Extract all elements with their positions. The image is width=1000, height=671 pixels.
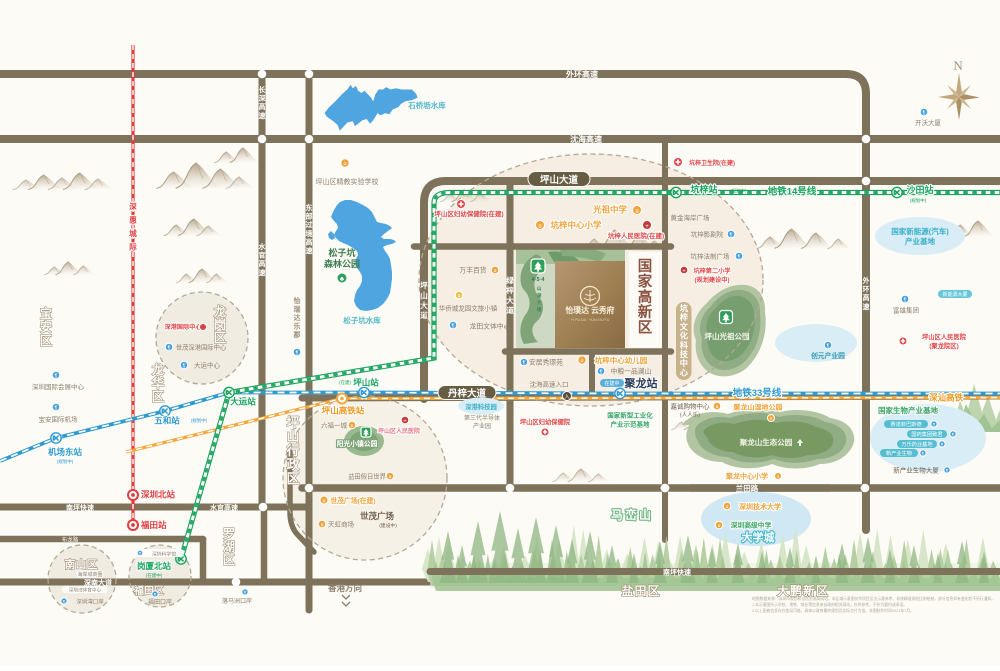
svg-text:益田假日世界: 益田假日世界 — [348, 472, 386, 481]
svg-text:松子坑: 松子坑 — [328, 247, 355, 258]
svg-text:瑞: 瑞 — [294, 305, 301, 314]
svg-text:龙田文体中心: 龙田文体中心 — [470, 322, 511, 331]
svg-text:水官高速: 水官高速 — [210, 503, 238, 512]
svg-text:郡: 郡 — [293, 330, 301, 339]
svg-text:(规划中): (规划中) — [730, 188, 747, 195]
svg-text:沈海高速: 沈海高速 — [570, 134, 602, 144]
svg-text:在建中: 在建中 — [604, 380, 619, 387]
svg-text:赛诺菲巴斯德: 赛诺菲巴斯德 — [890, 420, 921, 428]
svg-text:六福一城: 六福一城 — [321, 421, 348, 430]
svg-text:安: 安 — [40, 320, 53, 335]
svg-text:(规划中): (规划中) — [191, 417, 208, 424]
svg-text:盐田区: 盐田区 — [621, 583, 660, 598]
svg-text:N: N — [953, 58, 963, 73]
svg-text:国家新型工业化: 国家新型工业化 — [607, 411, 653, 420]
svg-text:(人人乐): (人人乐) — [680, 412, 700, 419]
svg-text:文: 文 — [680, 321, 689, 331]
svg-text:高: 高 — [638, 288, 653, 306]
svg-text:绿: 绿 — [506, 275, 514, 285]
svg-text:坑梓第二小学: 坑梓第二小学 — [693, 267, 730, 275]
svg-text:福田区: 福田区 — [133, 584, 164, 597]
svg-text:部: 部 — [306, 212, 313, 221]
svg-text:南坪快速: 南坪快速 — [663, 568, 691, 577]
svg-text:区: 区 — [152, 390, 165, 404]
svg-text:¶: ¶ — [55, 373, 58, 379]
svg-text:惠: 惠 — [129, 215, 137, 225]
svg-text:岗厦北站: 岗厦北站 — [137, 561, 172, 571]
svg-text:龙: 龙 — [151, 362, 165, 377]
svg-text:深圳高级中学: 深圳高级中学 — [731, 521, 772, 530]
svg-text:境: 境 — [537, 306, 542, 313]
svg-text:湖: 湖 — [223, 539, 235, 554]
svg-text:地铁14号线: 地铁14号线 — [768, 186, 817, 198]
svg-text:坑梓中心小学: 坑梓中心小学 — [550, 220, 602, 230]
svg-text:大学城: 大学城 — [742, 530, 775, 544]
svg-text:2.以上配套信息存在变动可能，具体以政府最终规划及实际交付为: 2.以上配套信息存在变动可能，具体以政府最终规划及实际交付为准。本图制作时间20… — [752, 608, 914, 613]
svg-text:创元产业园: 创元产业园 — [810, 351, 845, 360]
svg-text:城: 城 — [129, 228, 137, 238]
svg-text:¤: ¤ — [458, 293, 461, 299]
svg-text:高: 高 — [259, 259, 266, 268]
svg-text:光祖中学: 光祖中学 — [592, 205, 628, 215]
svg-text:政: 政 — [286, 457, 300, 472]
svg-text:¤: ¤ — [343, 162, 346, 168]
svg-text:坑梓人民医院(在建): 坑梓人民医院(在建) — [608, 231, 664, 240]
svg-text:湖: 湖 — [537, 292, 542, 299]
svg-text:聚龙山生态公园: 聚龙山生态公园 — [739, 437, 793, 447]
svg-text:深圳湾体育中心: 深圳湾体育中心 — [69, 587, 102, 594]
svg-text:国家新能源(汽车): 国家新能源(汽车) — [891, 226, 949, 236]
svg-text:(规划中): (规划中) — [57, 458, 74, 465]
svg-text:¤: ¤ — [321, 522, 324, 528]
svg-text:区: 区 — [286, 471, 299, 486]
svg-text:+: + — [645, 224, 649, 230]
svg-text:罗: 罗 — [223, 526, 235, 541]
svg-text:4·5·4: 4·5·4 — [532, 277, 546, 283]
svg-text:深港国际中心: 深港国际中心 — [164, 323, 202, 331]
svg-text:国家生物产业基地: 国家生物产业基地 — [878, 405, 938, 415]
svg-text:坪山区妇幼保健院: 坪山区妇幼保健院 — [520, 417, 571, 426]
svg-text:长: 长 — [259, 85, 267, 94]
svg-text:官: 官 — [259, 251, 266, 260]
svg-text:速: 速 — [306, 246, 313, 255]
svg-text:高: 高 — [863, 293, 870, 302]
svg-text:达: 达 — [294, 313, 301, 322]
svg-text:马峦山: 马峦山 — [611, 507, 653, 522]
svg-text:(聚龙院区): (聚龙院区) — [929, 341, 958, 350]
svg-text:♣: ♣ — [340, 276, 345, 283]
svg-text:¤: ¤ — [580, 359, 583, 365]
svg-text:坑梓法制广场: 坑梓法制广场 — [691, 252, 731, 261]
svg-text:化: 化 — [680, 331, 689, 341]
svg-text:速: 速 — [259, 111, 266, 120]
svg-text:深南大道: 深南大道 — [84, 578, 112, 587]
svg-text:¶: ¶ — [523, 360, 526, 366]
svg-text:坪山区精教实验学校: 坪山区精教实验学校 — [316, 177, 379, 186]
svg-text:香港方向: 香港方向 — [327, 583, 362, 593]
svg-text:入: 入 — [564, 395, 570, 401]
svg-text:1.本示意图所示学校、地铁、商业等信息来自政府相关网站，仅供: 1.本示意图所示学校、地铁、商业等信息来自政府相关网站，仅供参考，不作为要约或承… — [752, 602, 907, 607]
svg-text:道: 道 — [420, 310, 428, 320]
svg-text:聚龙中心小学: 聚龙中心小学 — [725, 472, 768, 481]
svg-text:产业示范基地: 产业示范基地 — [611, 420, 651, 429]
svg-text:国药集团致君: 国药集团致君 — [911, 430, 942, 438]
svg-text:深港科技园: 深港科技园 — [465, 402, 496, 411]
svg-text:兰田路: 兰田路 — [736, 483, 759, 493]
svg-text:¤: ¤ — [777, 474, 780, 480]
svg-text:石桥坜水库: 石桥坜水库 — [407, 100, 446, 110]
svg-text:深圳北站: 深圳北站 — [141, 490, 176, 500]
svg-text:安居秀璟苑: 安居秀璟苑 — [529, 358, 563, 367]
svg-text:(建设中): (建设中) — [379, 522, 397, 529]
svg-text:速: 速 — [863, 302, 870, 311]
svg-text:产业基地: 产业基地 — [905, 236, 935, 246]
svg-text:怡璞达 云秀府: 怡璞达 云秀府 — [566, 305, 615, 315]
svg-text:福田站: 福田站 — [140, 520, 167, 530]
svg-text:行: 行 — [285, 443, 299, 458]
svg-text:梓: 梓 — [506, 285, 514, 295]
svg-text:环: 环 — [863, 286, 870, 294]
svg-text:区: 区 — [40, 334, 53, 348]
svg-text:落马洲口岸: 落马洲口岸 — [222, 597, 252, 605]
svg-text:家: 家 — [638, 272, 653, 290]
svg-text:新: 新 — [638, 303, 653, 321]
svg-text:坪: 坪 — [286, 415, 299, 430]
svg-text:世茂深港国际中心: 世茂深港国际中心 — [176, 343, 227, 352]
svg-text:区: 区 — [223, 553, 235, 567]
svg-text:坑梓站: 坑梓站 — [690, 184, 717, 195]
svg-text:区: 区 — [214, 331, 227, 345]
svg-text:岗: 岗 — [214, 317, 227, 332]
svg-text:(规划建设中): (规划建设中) — [694, 276, 729, 284]
svg-text:大运站: 大运站 — [230, 397, 256, 407]
svg-text:(在建中): (在建中) — [146, 572, 163, 579]
svg-text:高: 高 — [259, 102, 266, 111]
svg-text:嘉诚购物中心: 嘉诚购物中心 — [671, 402, 711, 411]
svg-text:大运中心: 大运中心 — [194, 361, 221, 370]
svg-text:新能源大厦: 新能源大厦 — [942, 291, 967, 298]
svg-text:YI PU DA · YUN XIU FU: YI PU DA · YUN XIU FU — [571, 318, 610, 322]
svg-text:大: 大 — [537, 299, 542, 306]
svg-text:¤: ¤ — [494, 268, 497, 274]
svg-text:南坪快速: 南坪快速 — [66, 503, 94, 512]
svg-text:¤: ¤ — [716, 404, 719, 410]
svg-text:科: 科 — [680, 340, 689, 350]
svg-text:聚龙山湿地公园: 聚龙山湿地公园 — [733, 403, 783, 412]
svg-text:¤: ¤ — [726, 504, 729, 510]
svg-text:坑梓卫生院(在建): 坑梓卫生院(在建) — [689, 159, 735, 167]
svg-text:山: 山 — [537, 285, 542, 292]
svg-text:+: + — [404, 418, 407, 424]
svg-text:新产业生物大厦: 新产业生物大厦 — [893, 466, 939, 475]
svg-text:¶: ¶ — [738, 254, 741, 260]
svg-text:¤: ¤ — [389, 474, 392, 480]
svg-text:黄金海岸广场: 黄金海岸广场 — [671, 213, 711, 222]
svg-text:天虹商场: 天虹商场 — [328, 520, 355, 529]
svg-text:南山区: 南山区 — [65, 557, 98, 571]
svg-text:新产业生物: 新产业生物 — [886, 449, 912, 457]
svg-text:中: 中 — [680, 358, 688, 368]
svg-text:机场东站: 机场东站 — [48, 447, 83, 457]
svg-text:¶: ¶ — [600, 369, 603, 375]
svg-text:大: 大 — [420, 300, 428, 310]
svg-text:中粮一品澜山: 中粮一品澜山 — [611, 367, 652, 376]
svg-text:沈海高速入口: 沈海高速入口 — [530, 380, 569, 389]
svg-text:富雄集团: 富雄集团 — [893, 306, 919, 315]
svg-text:坑: 坑 — [680, 303, 689, 313]
svg-text:福田口岸: 福田口岸 — [148, 598, 172, 606]
svg-text:东: 东 — [306, 203, 313, 212]
svg-text:坪: 坪 — [420, 280, 428, 290]
svg-text:龙: 龙 — [213, 304, 227, 319]
svg-text:外环高速: 外环高速 — [566, 69, 598, 79]
svg-text:¶: ¶ — [55, 405, 58, 411]
svg-text:布龙路: 布龙路 — [62, 536, 79, 544]
svg-text:世茂广场: 世茂广场 — [360, 511, 395, 521]
svg-text:地铁33号线: 地铁33号线 — [733, 387, 782, 399]
svg-text:大: 大 — [506, 295, 514, 305]
svg-text:际: 际 — [129, 243, 137, 252]
svg-text:¶: ¶ — [139, 552, 141, 556]
svg-text:宝安国际机场: 宝安国际机场 — [39, 415, 79, 424]
svg-text:沙田站: 沙田站 — [906, 184, 933, 195]
svg-text:¶: ¶ — [183, 363, 186, 369]
svg-text:¶: ¶ — [296, 350, 299, 356]
svg-text:怡: 怡 — [294, 296, 301, 305]
svg-text:心: 心 — [680, 367, 689, 377]
svg-text:¤: ¤ — [323, 498, 326, 504]
svg-text:深汕高铁: 深汕高铁 — [929, 393, 964, 403]
svg-text:梓: 梓 — [680, 312, 689, 322]
svg-text:华侨城龙园文旅小镇: 华侨城龙园文旅小镇 — [439, 304, 498, 313]
svg-text:¶: ¶ — [168, 345, 171, 351]
svg-text:+: + — [683, 268, 686, 274]
svg-text:国: 国 — [638, 258, 653, 275]
svg-text:坪山区人民医院: 坪山区人民医院 — [922, 332, 967, 341]
svg-text:产业园: 产业园 — [473, 422, 491, 430]
svg-text:外: 外 — [863, 276, 870, 285]
svg-text:万乐药业基地: 万乐药业基地 — [901, 440, 932, 448]
svg-text:乐: 乐 — [294, 322, 301, 331]
svg-text:(在建): (在建) — [339, 379, 351, 386]
svg-text:坪山高铁站: 坪山高铁站 — [322, 406, 365, 416]
svg-text:¶: ¶ — [904, 297, 907, 303]
svg-text:深圳技术大学: 深圳技术大学 — [739, 502, 781, 511]
svg-text:第三代半导体: 第三代半导体 — [464, 414, 500, 422]
svg-text:坑梓影剧院: 坑梓影剧院 — [691, 230, 724, 239]
svg-text:(规划中): (规划中) — [910, 197, 927, 204]
svg-text:水: 水 — [259, 242, 267, 251]
svg-text:阳光小镇公园: 阳光小镇公园 — [337, 439, 378, 448]
svg-text:过: 过 — [306, 220, 313, 229]
svg-text:¶: ¶ — [923, 110, 926, 116]
svg-text:坪山区人民医院: 坪山区人民医院 — [378, 427, 420, 435]
svg-text:地图数据来源：深圳市规划和自然资源局网站，本区域示意图仅作项: 地图数据来源：深圳市规划和自然资源局网站，本区域示意图仅作项目区位示意参考，非按… — [752, 596, 995, 601]
svg-text:开沃大厦: 开沃大厦 — [915, 118, 942, 127]
svg-text:华: 华 — [152, 376, 165, 391]
svg-text:森林公园: 森林公园 — [324, 258, 360, 269]
svg-text:¶: ¶ — [730, 232, 733, 238]
svg-text:坪山区妇幼保健院(在建): 坪山区妇幼保健院(在建) — [434, 209, 503, 218]
svg-text:深: 深 — [259, 94, 266, 103]
svg-text:宝: 宝 — [40, 306, 53, 321]
svg-text:境: 境 — [306, 229, 313, 238]
svg-text:松子坑水库: 松子坑水库 — [343, 315, 381, 325]
svg-text:世茂广场(在建): 世茂广场(在建) — [330, 496, 375, 505]
svg-text:五和站: 五和站 — [154, 416, 180, 426]
svg-text:¶: ¶ — [827, 343, 830, 349]
svg-text:聚龙站: 聚龙站 — [624, 376, 658, 390]
svg-text:高: 高 — [306, 237, 313, 246]
svg-text:¤: ¤ — [718, 523, 721, 529]
svg-text:区: 区 — [638, 320, 653, 337]
svg-text:¶: ¶ — [452, 323, 455, 329]
svg-text:坑梓中心幼儿园: 坑梓中心幼儿园 — [595, 355, 648, 365]
svg-text:深圳科学馆: 深圳科学馆 — [152, 551, 176, 558]
svg-text:道: 道 — [506, 305, 514, 315]
svg-text:深圳国际会展中心: 深圳国际会展中心 — [32, 382, 85, 391]
svg-text:万丰百货: 万丰百货 — [459, 266, 486, 275]
svg-text:深圳湾口岸: 深圳湾口岸 — [76, 598, 104, 606]
svg-text:技: 技 — [680, 349, 689, 359]
svg-text:¤: ¤ — [351, 423, 354, 429]
svg-text:坪山站: 坪山站 — [353, 378, 379, 388]
svg-text:大鹏新区: 大鹏新区 — [777, 583, 829, 598]
svg-text:坪山大道: 坪山大道 — [540, 174, 579, 186]
svg-text:山: 山 — [286, 429, 299, 444]
svg-text:海岸城商圈: 海岸城商圈 — [77, 571, 102, 578]
svg-text:深: 深 — [129, 201, 137, 211]
svg-text:速: 速 — [259, 268, 266, 277]
svg-text:¤: ¤ — [770, 416, 773, 422]
